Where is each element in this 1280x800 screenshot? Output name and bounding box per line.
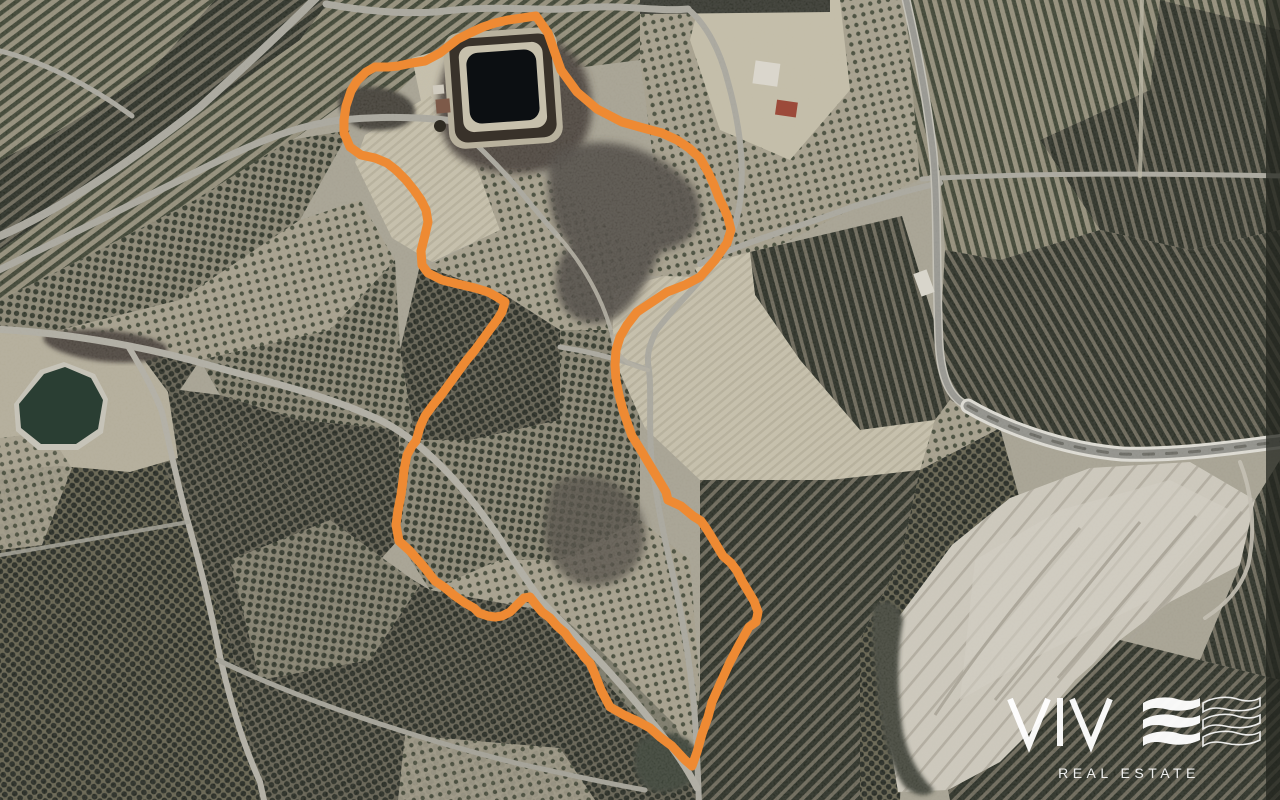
svg-text:REAL ESTATE: REAL ESTATE <box>1058 765 1200 781</box>
